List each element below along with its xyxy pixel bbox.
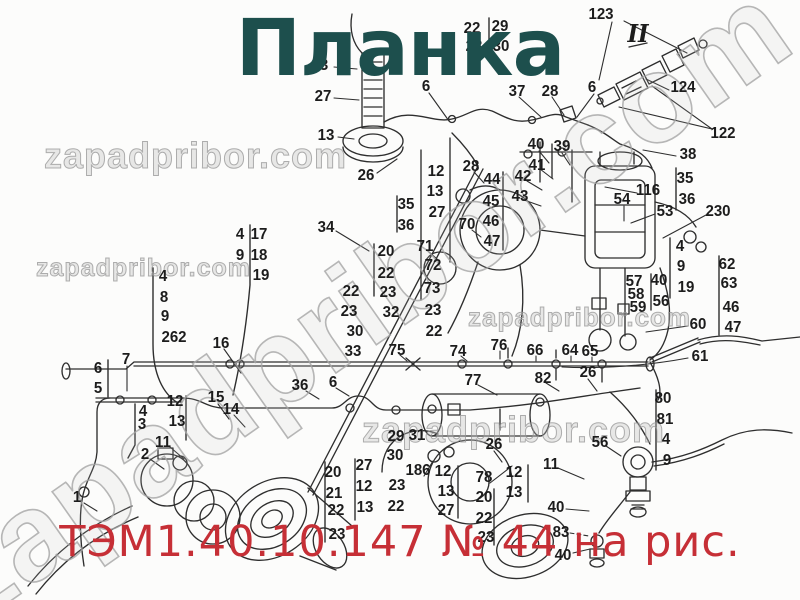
callout-label: 22 [343, 284, 360, 300]
callout-label: 72 [425, 258, 442, 274]
callout-label: 22 [388, 499, 405, 515]
callout-label: 26 [580, 365, 597, 381]
callout-label: 13 [438, 484, 455, 500]
callout-label: 27 [429, 205, 446, 221]
callout-label: 16 [213, 336, 230, 352]
callout-label: 47 [725, 320, 742, 336]
callout-label: 230 [705, 204, 730, 220]
callout-label: 66 [527, 343, 544, 359]
callout-label: 12 [356, 479, 373, 495]
callout-label: 23 [380, 285, 397, 301]
callout-label: 43 [512, 189, 529, 205]
callout-label: 56 [653, 294, 670, 310]
callout-label: 22 [378, 266, 395, 282]
callout-label: 20 [476, 490, 493, 506]
callout-label: 29 [388, 429, 405, 445]
callout-label: 17 [251, 227, 268, 243]
callout-label: 4 [159, 269, 167, 285]
callout-label: 47 [484, 234, 501, 250]
callout-label: 36 [398, 218, 415, 234]
callout-label: 8 [160, 290, 168, 306]
callout-label: 63 [721, 276, 738, 292]
callout-label: 78 [476, 470, 493, 486]
callout-label: 65 [582, 344, 599, 360]
callout-label: 34 [318, 220, 335, 236]
part-number-caption: ТЭМ1.40.10.147 № 44 на рис. [0, 518, 800, 567]
callout-label: 11 [155, 435, 171, 451]
callout-label: 75 [389, 343, 406, 359]
callout-label: 22 [426, 324, 443, 340]
callout-label: 13 [506, 485, 523, 501]
callout-label: 262 [161, 330, 186, 346]
callout-label: 13 [427, 184, 444, 200]
callout-label: 36 [679, 192, 696, 208]
callout-label: 70 [459, 217, 476, 233]
callout-label: 14 [223, 402, 240, 418]
callout-label: 4 [662, 432, 670, 448]
figure-title: Планка [0, 10, 800, 88]
callout-label: 82 [535, 371, 552, 387]
callout-label: 20 [378, 244, 395, 260]
callout-label: 71 [417, 239, 434, 255]
callout-label: 73 [424, 281, 441, 297]
callout-label: 19 [253, 268, 270, 284]
callout-label: 2 [141, 447, 149, 463]
callout-label: 35 [677, 171, 694, 187]
callout-label: 46 [483, 214, 500, 230]
callout-label: 26 [486, 437, 503, 453]
callout-label: 19 [678, 280, 695, 296]
callout-label: 12 [428, 164, 445, 180]
callout-label: 74 [450, 344, 467, 360]
callout-label: 26 [358, 168, 375, 184]
callout-label: 54 [614, 192, 631, 208]
callout-label: 32 [383, 305, 400, 321]
callout-label: 30 [347, 324, 364, 340]
callout-label: 80 [655, 391, 672, 407]
callout-label: 44 [484, 172, 501, 188]
callout-label: 53 [657, 204, 674, 220]
callout-label: 13 [357, 500, 374, 516]
callout-label: 30 [387, 448, 404, 464]
callout-label: 56 [592, 435, 609, 451]
callout-label: 64 [562, 343, 579, 359]
callout-label: 116 [636, 183, 660, 199]
callout-label: 9 [236, 248, 244, 264]
callout-label: 6 [329, 375, 337, 391]
callout-label: 28 [463, 159, 480, 175]
callout-label: 76 [491, 338, 508, 354]
callout-label: 12 [506, 465, 523, 481]
callout-label: 7 [122, 352, 130, 368]
callout-label: 59 [630, 300, 647, 316]
callout-label: 61 [692, 349, 709, 365]
callout-label: 38 [680, 147, 697, 163]
callout-label: 42 [515, 169, 532, 185]
callout-label: 20 [325, 465, 342, 481]
callout-label: 3 [138, 417, 146, 433]
callout-label: 186 [405, 463, 430, 479]
callout-label: 81 [657, 412, 674, 428]
callout-label: 23 [389, 478, 406, 494]
callout-label: 122 [710, 126, 735, 142]
callout-label: 23 [425, 303, 442, 319]
callout-label: 23 [341, 304, 358, 320]
callout-label: 21 [326, 486, 343, 502]
callout-label: 46 [723, 300, 740, 316]
callout-label: 9 [677, 259, 685, 275]
callout-label: 1 [73, 490, 81, 506]
callout-label: 27 [356, 458, 373, 474]
callout-label: 5 [94, 381, 102, 397]
callout-label: 9 [161, 309, 169, 325]
callout-label: 12 [435, 464, 452, 480]
callout-label: 33 [345, 344, 362, 360]
callout-label: 9 [663, 453, 671, 469]
callout-label: 6 [94, 361, 102, 377]
callout-label: 39 [554, 139, 571, 155]
callout-label: 77 [465, 373, 482, 389]
callout-label: 60 [690, 317, 707, 333]
callout-label: 4 [676, 239, 684, 255]
callout-label: 35 [398, 197, 415, 213]
callout-label: 4 [236, 227, 244, 243]
callout-label: 45 [483, 194, 500, 210]
callout-label: 12 [167, 394, 184, 410]
callout-label: 40 [528, 137, 545, 153]
callout-label: 36 [292, 378, 309, 394]
callout-label: 11 [543, 457, 559, 473]
callout-label: 18 [251, 248, 268, 264]
figure-canvas: zapadpribor.com zapadpribor.com zapadpri… [0, 0, 800, 600]
callout-label: 13 [318, 128, 335, 144]
callout-label: 62 [719, 257, 736, 273]
callout-label: 31 [409, 428, 426, 444]
callout-label: 13 [169, 414, 186, 430]
callout-label: 40 [651, 273, 668, 289]
callout-label: 40 [548, 500, 565, 516]
